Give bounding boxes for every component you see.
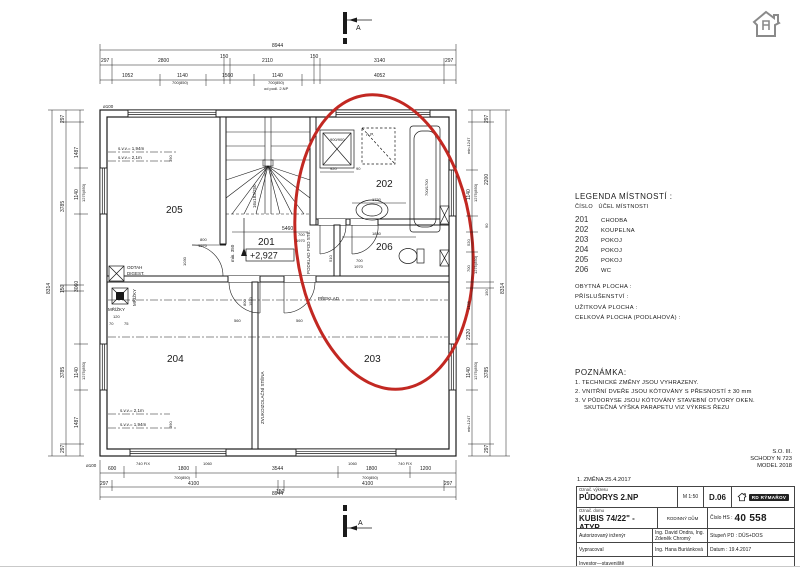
corner-model: MODEL 2018 xyxy=(750,463,792,470)
svg-text:920: 920 xyxy=(330,166,337,171)
note-3: 3. V PŮDORYSE JSOU KÓTOVÁNY STAVEBNÍ OTV… xyxy=(575,398,795,404)
svg-text:1850: 1850 xyxy=(372,231,382,236)
svg-text:1275(850): 1275(850) xyxy=(81,183,86,202)
stairs-label: 16x183/250 xyxy=(252,184,257,208)
svg-text:3544: 3544 xyxy=(272,466,283,472)
svg-text:ø100: ø100 xyxy=(103,104,114,109)
svg-text:297: 297 xyxy=(100,481,109,487)
svg-text:1485: 1485 xyxy=(466,300,471,310)
svg-text:MŘÍŽKY: MŘÍŽKY xyxy=(130,289,137,306)
svg-text:2800: 2800 xyxy=(158,58,169,64)
legend-row: 202KOUPELNA xyxy=(575,225,795,234)
title-block: Označ. výkresu PŮDORYS 2.NP M 1:50 D.06 … xyxy=(576,486,795,567)
svg-text:4052: 4052 xyxy=(374,73,385,79)
svg-text:1060: 1060 xyxy=(348,461,358,466)
svg-text:8944: 8944 xyxy=(272,43,283,49)
svg-text:297: 297 xyxy=(444,481,453,487)
hs-number-cell: Číslo HS : 40 558 xyxy=(708,508,794,528)
svg-text:PŘEKLAD: PŘEKLAD xyxy=(318,294,340,301)
svg-text:1140: 1140 xyxy=(74,367,80,378)
section-label-bottom: A xyxy=(358,520,363,527)
svg-text:70: 70 xyxy=(109,321,114,326)
svg-text:1275(850): 1275(850) xyxy=(473,361,478,380)
note-1: 1. TECHNICKÉ ZMĚNY JSOU VYHRAZENY. xyxy=(575,380,795,386)
company-house-logo xyxy=(750,8,782,45)
bath-size: 700/1700 xyxy=(424,179,429,196)
section-label-top: A xyxy=(356,25,361,32)
svg-text:8314: 8314 xyxy=(46,283,52,294)
svg-text:700(850): 700(850) xyxy=(172,80,189,85)
svg-text:1487: 1487 xyxy=(74,417,80,428)
scale-label: M 1:50 xyxy=(678,487,704,507)
svg-text:1200: 1200 xyxy=(420,466,431,472)
svg-text:1275(850): 1275(850) xyxy=(473,183,478,202)
house-type: KUBIS 74/22" - ATYP xyxy=(579,514,655,528)
svg-text:s.v.v.= 1,94m: s.v.v.= 1,94m xyxy=(118,146,144,151)
corner-so: S.O. III. xyxy=(750,449,792,456)
svg-text:510: 510 xyxy=(328,255,333,262)
svg-text:700(850): 700(850) xyxy=(268,80,285,85)
svg-text:1560: 1560 xyxy=(222,73,233,79)
svg-text:1140: 1140 xyxy=(466,189,472,200)
svg-text:700: 700 xyxy=(356,258,363,263)
windows xyxy=(100,110,456,456)
section-marker-bottom: A xyxy=(345,505,372,537)
notes-panel: POZNÁMKA: 1. TECHNICKÉ ZMĚNY JSOU VYHRAZ… xyxy=(575,368,795,411)
svg-text:1970: 1970 xyxy=(198,243,208,248)
svg-text:ø100: ø100 xyxy=(86,463,97,468)
svg-text:1800: 1800 xyxy=(366,466,377,472)
svg-text:min.1247: min.1247 xyxy=(466,415,471,432)
change-note: 1. ZMĚNA 25.4.2017 xyxy=(577,477,631,483)
toilet xyxy=(399,249,424,264)
company-logo-cell: RD RÝMAŘOV xyxy=(732,487,794,507)
svg-text:3140: 3140 xyxy=(374,58,385,64)
svg-text:8314: 8314 xyxy=(500,283,506,294)
legend-row: 204POKOJ xyxy=(575,245,795,254)
svg-text:MŘÍŽKY: MŘÍŽKY xyxy=(108,305,125,312)
svg-text:150: 150 xyxy=(484,289,489,296)
svg-text:2110: 2110 xyxy=(262,58,273,64)
note-2: 2. VNITŘNÍ DVEŘE JSOU KÓTOVÁNY S PŘESNOS… xyxy=(575,389,795,395)
svg-text:2320: 2320 xyxy=(466,329,472,340)
svg-text:1052: 1052 xyxy=(122,73,133,79)
svg-text:PODKLAD POD STĚ.: PODKLAD POD STĚ. xyxy=(304,230,311,274)
brand-name: RD RÝMAŘOV xyxy=(749,494,789,501)
svg-text:1750: 1750 xyxy=(372,197,382,202)
svg-text:1140: 1140 xyxy=(272,73,283,79)
area-celkova: CELKOVÁ PLOCHA (PODLAHOVÁ) : xyxy=(575,315,795,321)
svg-text:1060: 1060 xyxy=(203,461,213,466)
svg-text:740 FIX: 740 FIX xyxy=(398,461,412,466)
svg-text:600: 600 xyxy=(108,466,117,472)
hs-value: 40 558 xyxy=(735,513,767,524)
svg-text:800: 800 xyxy=(200,237,207,242)
svg-text:4100: 4100 xyxy=(188,481,199,487)
svg-text:1800: 1800 xyxy=(178,466,189,472)
svg-text:3785: 3785 xyxy=(60,367,66,378)
svg-text:s.v.v.= 2,1m: s.v.v.= 2,1m xyxy=(118,155,142,160)
room-202: 202 xyxy=(376,179,393,190)
slope-lines xyxy=(108,152,448,428)
svg-text:390: 390 xyxy=(168,155,173,162)
svg-text:390: 390 xyxy=(168,421,173,428)
radiators xyxy=(440,206,449,266)
shower xyxy=(320,130,354,168)
engineer-label: Autorizovaný inženýr xyxy=(577,529,653,542)
room-205: 205 xyxy=(166,205,183,216)
hs-label: Číslo HS : xyxy=(710,515,733,521)
legend-row: 205POKOJ xyxy=(575,255,795,264)
svg-text:5460: 5460 xyxy=(282,226,293,232)
building-type: RODINNÝ DŮM xyxy=(658,508,708,528)
svg-text:700: 700 xyxy=(298,232,305,237)
area-uzitkova: UŽITKOVÁ PLOCHA : xyxy=(575,305,795,311)
drawing-page: { "plan": { "section_label": "A", "rooms… xyxy=(0,0,800,567)
svg-text:min. 350: min. 350 xyxy=(230,244,235,262)
svg-text:1487: 1487 xyxy=(74,147,80,158)
svg-text:2200: 2200 xyxy=(484,174,490,185)
svg-text:1140: 1140 xyxy=(466,367,472,378)
svg-text:1970: 1970 xyxy=(354,264,364,269)
svg-text:1970: 1970 xyxy=(296,238,306,243)
drawing-code: D.06 xyxy=(704,487,732,507)
svg-text:s.v.v.= 1,94m: s.v.v.= 1,94m xyxy=(120,422,146,427)
date-value: Datum : 19.4.2017 xyxy=(708,543,794,556)
svg-text:3785: 3785 xyxy=(484,367,490,378)
area-prislusenstvi: PŘÍSLUŠENSTVÍ : xyxy=(575,294,795,300)
svg-text:520: 520 xyxy=(466,239,471,246)
legend-panel: LEGENDA MÍSTNOSTÍ : ČÍSLO ÚČEL MÍSTNOSTI… xyxy=(575,192,795,321)
corner-schody: SCHODY N 723 xyxy=(750,456,792,463)
legend-head-name: ÚČEL MÍSTNOSTI xyxy=(599,204,649,210)
svg-text:4100: 4100 xyxy=(362,481,373,487)
svg-text:3785: 3785 xyxy=(60,201,66,212)
svg-text:297: 297 xyxy=(60,444,66,453)
logo-house-icon xyxy=(737,492,747,502)
bathtub xyxy=(410,126,440,232)
room-206: 206 xyxy=(376,242,393,253)
svg-text:800: 800 xyxy=(242,299,247,306)
svg-text:ODTAH: ODTAH xyxy=(127,265,142,270)
shower-size: 900/900 xyxy=(330,137,345,142)
level-label: +2,927 xyxy=(250,251,278,261)
svg-text:150: 150 xyxy=(220,54,229,60)
svg-text:150: 150 xyxy=(310,54,319,60)
svg-text:297: 297 xyxy=(60,114,66,123)
svg-text:8944: 8944 xyxy=(272,491,283,497)
legend-row: 203POKOJ xyxy=(575,235,795,244)
room-203: 203 xyxy=(364,354,381,365)
svg-text:297: 297 xyxy=(101,58,110,64)
outer-walls xyxy=(100,110,456,456)
legend-row: 201CHODBA xyxy=(575,215,795,224)
note-3b: SKUTEČNÁ VÝŠKA PARAPETU VIZ VÝKRES ŘEZU xyxy=(584,405,795,411)
area-obytna: OBYTNÁ PLOCHA : xyxy=(575,284,795,290)
legend-row: 206WC xyxy=(575,265,795,274)
legend-head-num: ČÍSLO xyxy=(575,204,593,210)
house-icon xyxy=(750,8,782,40)
svg-text:s.v.v.= 2,1m: s.v.v.= 2,1m xyxy=(120,408,144,413)
notes-title: POZNÁMKA: xyxy=(575,368,795,377)
svg-text:1275(850): 1275(850) xyxy=(473,255,478,274)
svg-text:740 FIX: 740 FIX xyxy=(136,461,150,466)
room-201: 201 xyxy=(258,237,275,248)
svg-text:297: 297 xyxy=(484,114,490,123)
vent-odtah xyxy=(109,266,124,281)
svg-text:1030: 1030 xyxy=(182,256,187,266)
svg-text:297: 297 xyxy=(445,58,454,64)
ap-label: A.P. xyxy=(366,132,374,137)
svg-text:560: 560 xyxy=(234,318,241,323)
svg-text:120: 120 xyxy=(113,314,120,319)
svg-text:700(850): 700(850) xyxy=(174,475,191,480)
room-204: 204 xyxy=(167,354,184,365)
soundwall-label: ZVUKOIZOLAČNÍ STĚNA xyxy=(258,371,265,424)
drawing-title: PŮDORYS 2.NP xyxy=(579,493,675,502)
engineer-names: Ing. David Ondra, Ing. Zdeněk Chromý xyxy=(653,529,708,542)
svg-text:min.1247: min.1247 xyxy=(466,137,471,154)
floor-plan: A A xyxy=(0,0,570,566)
svg-text:DIGEST.: DIGEST. xyxy=(127,271,145,276)
svg-text:1970: 1970 xyxy=(248,296,253,306)
svg-text:od podl. 2.NP: od podl. 2.NP xyxy=(264,86,289,91)
legend-title: LEGENDA MÍSTNOSTÍ : xyxy=(575,192,795,201)
svg-text:1140: 1140 xyxy=(177,73,188,79)
section-marker-top: A xyxy=(345,12,372,44)
svg-text:700: 700 xyxy=(466,265,471,272)
svg-text:150: 150 xyxy=(60,284,66,293)
svg-text:560: 560 xyxy=(296,318,303,323)
svg-text:297: 297 xyxy=(484,444,490,453)
svg-text:1140: 1140 xyxy=(74,189,80,200)
svg-text:3060: 3060 xyxy=(74,281,80,292)
author-label: Vypracoval xyxy=(577,543,653,556)
author-name: Ing. Hana Buriánková xyxy=(653,543,708,556)
svg-text:90: 90 xyxy=(356,166,361,171)
svg-text:90: 90 xyxy=(484,223,489,228)
pd-stage: Stupeň PD : DÚS+DOS xyxy=(708,529,794,542)
interior-walls xyxy=(107,117,449,449)
corner-info: S.O. III. SCHODY N 723 MODEL 2018 xyxy=(750,449,792,471)
svg-text:1275(850): 1275(850) xyxy=(81,361,86,380)
svg-text:700(850): 700(850) xyxy=(362,475,379,480)
svg-text:75: 75 xyxy=(124,321,129,326)
vent-mrizky xyxy=(112,288,128,304)
